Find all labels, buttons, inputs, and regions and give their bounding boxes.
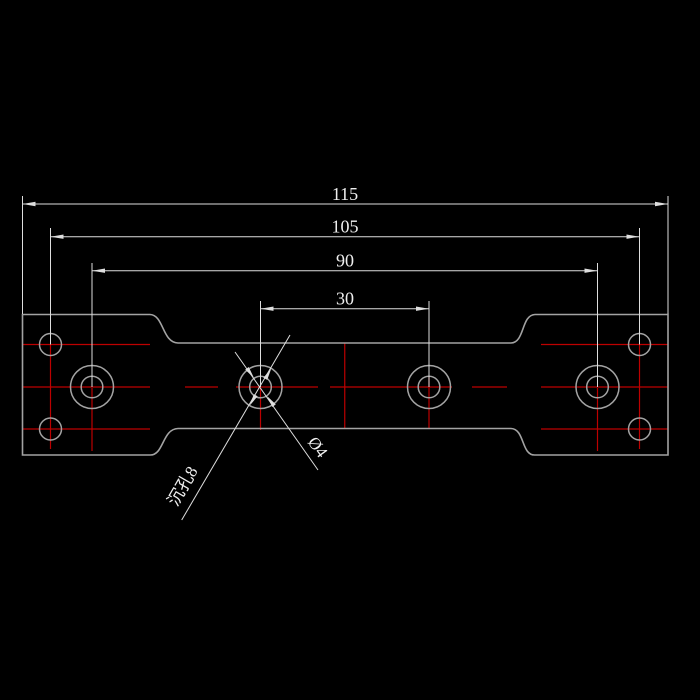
dimension-arrow xyxy=(585,269,598,273)
leader-counterbore: 沉孔8 xyxy=(164,335,290,520)
annotation-counterbore: 沉孔8 xyxy=(164,463,202,509)
dimension-105: 105 xyxy=(51,217,640,239)
leader-through-hole: Ø4 xyxy=(235,352,332,470)
dimension-90: 90 xyxy=(92,251,598,273)
dim-label-115: 115 xyxy=(332,184,358,204)
dimension-arrow xyxy=(23,202,36,206)
cad-drawing-canvas: 115 105 90 30 Ø4 沉孔8 xyxy=(0,0,700,700)
dimension-arrow xyxy=(261,307,274,311)
dimension-arrow xyxy=(416,307,429,311)
leader-arrow xyxy=(250,394,258,406)
centerlines xyxy=(23,344,669,452)
dimension-arrow xyxy=(655,202,668,206)
leader-arrow xyxy=(263,368,271,380)
dim-label-105: 105 xyxy=(332,217,359,237)
cad-drawing: 115 105 90 30 Ø4 沉孔8 xyxy=(0,0,700,700)
dim-label-90: 90 xyxy=(336,251,354,271)
dimension-30: 30 xyxy=(261,289,430,311)
dimension-arrow xyxy=(627,235,640,239)
dimension-115: 115 xyxy=(23,184,669,206)
dim-label-30: 30 xyxy=(336,289,354,309)
dimension-arrow xyxy=(51,235,64,239)
leader-line xyxy=(182,335,290,520)
annotation-through-hole: Ø4 xyxy=(304,433,332,461)
dimension-arrow xyxy=(92,269,105,273)
